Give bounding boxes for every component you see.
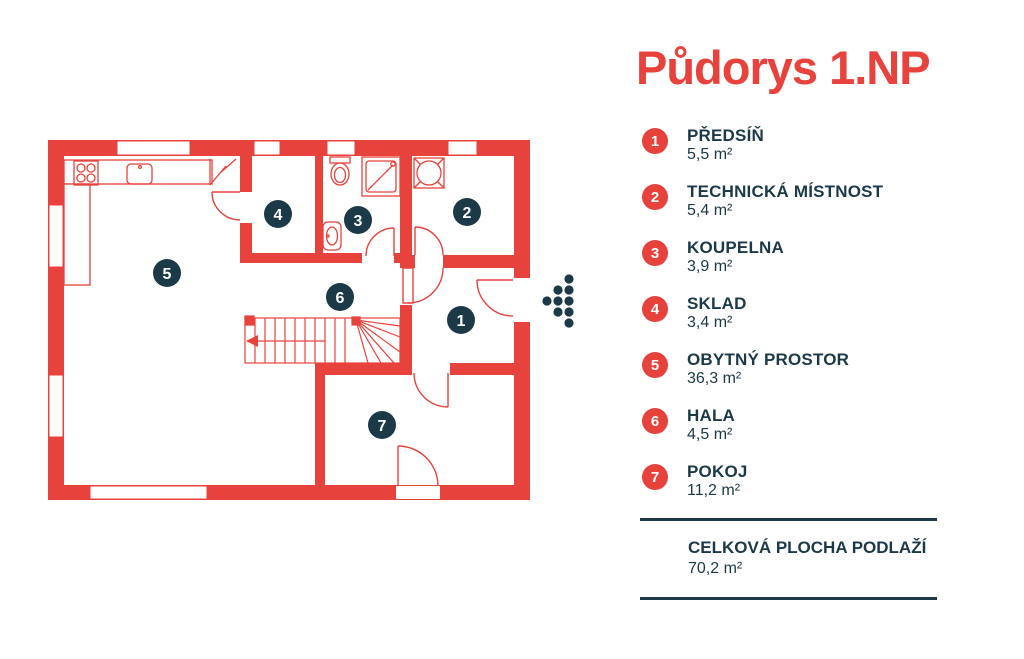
legend-item: 2 TECHNICKÁ MÍSTNOST 5,4 m²	[636, 184, 966, 240]
shower-icon	[362, 157, 400, 196]
badge-1: 1	[457, 313, 466, 330]
door-openings	[396, 255, 530, 499]
boiler-icon	[414, 158, 444, 188]
legend-item-area: 5,4 m²	[687, 202, 732, 220]
legend-item: 7 POKOJ 11,2 m²	[636, 464, 966, 520]
badge-7: 7	[378, 418, 387, 435]
legend-item: 6 HALA 4,5 m²	[636, 408, 966, 464]
legend-item-area: 11,2 m²	[687, 482, 740, 500]
legend-item-name: SKLAD	[687, 294, 747, 314]
legend-item-number: 6	[642, 408, 668, 434]
legend-item-number: 3	[642, 240, 668, 266]
legend-item-area: 36,3 m²	[687, 370, 741, 388]
cabinet-icon	[210, 159, 236, 185]
washbasin-icon	[323, 222, 341, 250]
badge-3: 3	[354, 213, 363, 230]
entrance-arrow-icon	[542, 274, 573, 327]
legend-item-area: 3,4 m²	[687, 314, 732, 332]
legend-item-name: TECHNICKÁ MÍSTNOST	[687, 182, 883, 202]
legend-item-name: PŘEDSÍŇ	[687, 126, 764, 146]
badge-6: 6	[336, 290, 345, 307]
divider	[640, 597, 937, 600]
stairs	[245, 316, 400, 363]
legend-item-number: 2	[642, 184, 668, 210]
floorplan: 1 2 3 4 5 6 7	[0, 0, 620, 659]
legend-item-name: OBYTNÝ PROSTOR	[687, 350, 849, 370]
badge-4: 4	[274, 207, 283, 224]
legend-item: 4 SKLAD 3,4 m²	[636, 296, 966, 352]
legend-item-name: KOUPELNA	[687, 238, 784, 258]
legend-items: 1 PŘEDSÍŇ 5,5 m² 2 TECHNICKÁ MÍSTNOST 5,…	[636, 128, 966, 520]
legend-item-area: 4,5 m²	[687, 426, 732, 444]
kitchen-counter	[64, 160, 212, 285]
legend-item-number: 5	[642, 352, 668, 378]
page-title: Půdorys 1.NP	[636, 44, 930, 91]
total-area-value: 70,2 m²	[688, 560, 742, 578]
legend-item-number: 4	[642, 296, 668, 322]
legend-item-area: 5,5 m²	[687, 146, 732, 164]
legend-item-name: HALA	[687, 406, 735, 426]
divider	[640, 518, 937, 521]
legend-item-area: 3,9 m²	[687, 258, 732, 276]
windows	[49, 141, 477, 499]
legend-item-name: POKOJ	[687, 462, 748, 482]
badge-2: 2	[463, 205, 472, 222]
total-area-label: CELKOVÁ PLOCHA PODLAŽÍ	[688, 538, 926, 558]
legend-item: 1 PŘEDSÍŇ 5,5 m²	[636, 128, 966, 184]
toilet-icon	[330, 157, 350, 185]
legend-item-number: 7	[642, 464, 668, 490]
legend-item: 3 KOUPELNA 3,9 m²	[636, 240, 966, 296]
legend-item-number: 1	[642, 128, 668, 154]
badge-5: 5	[163, 266, 172, 283]
legend-item: 5 OBYTNÝ PROSTOR 36,3 m²	[636, 352, 966, 408]
